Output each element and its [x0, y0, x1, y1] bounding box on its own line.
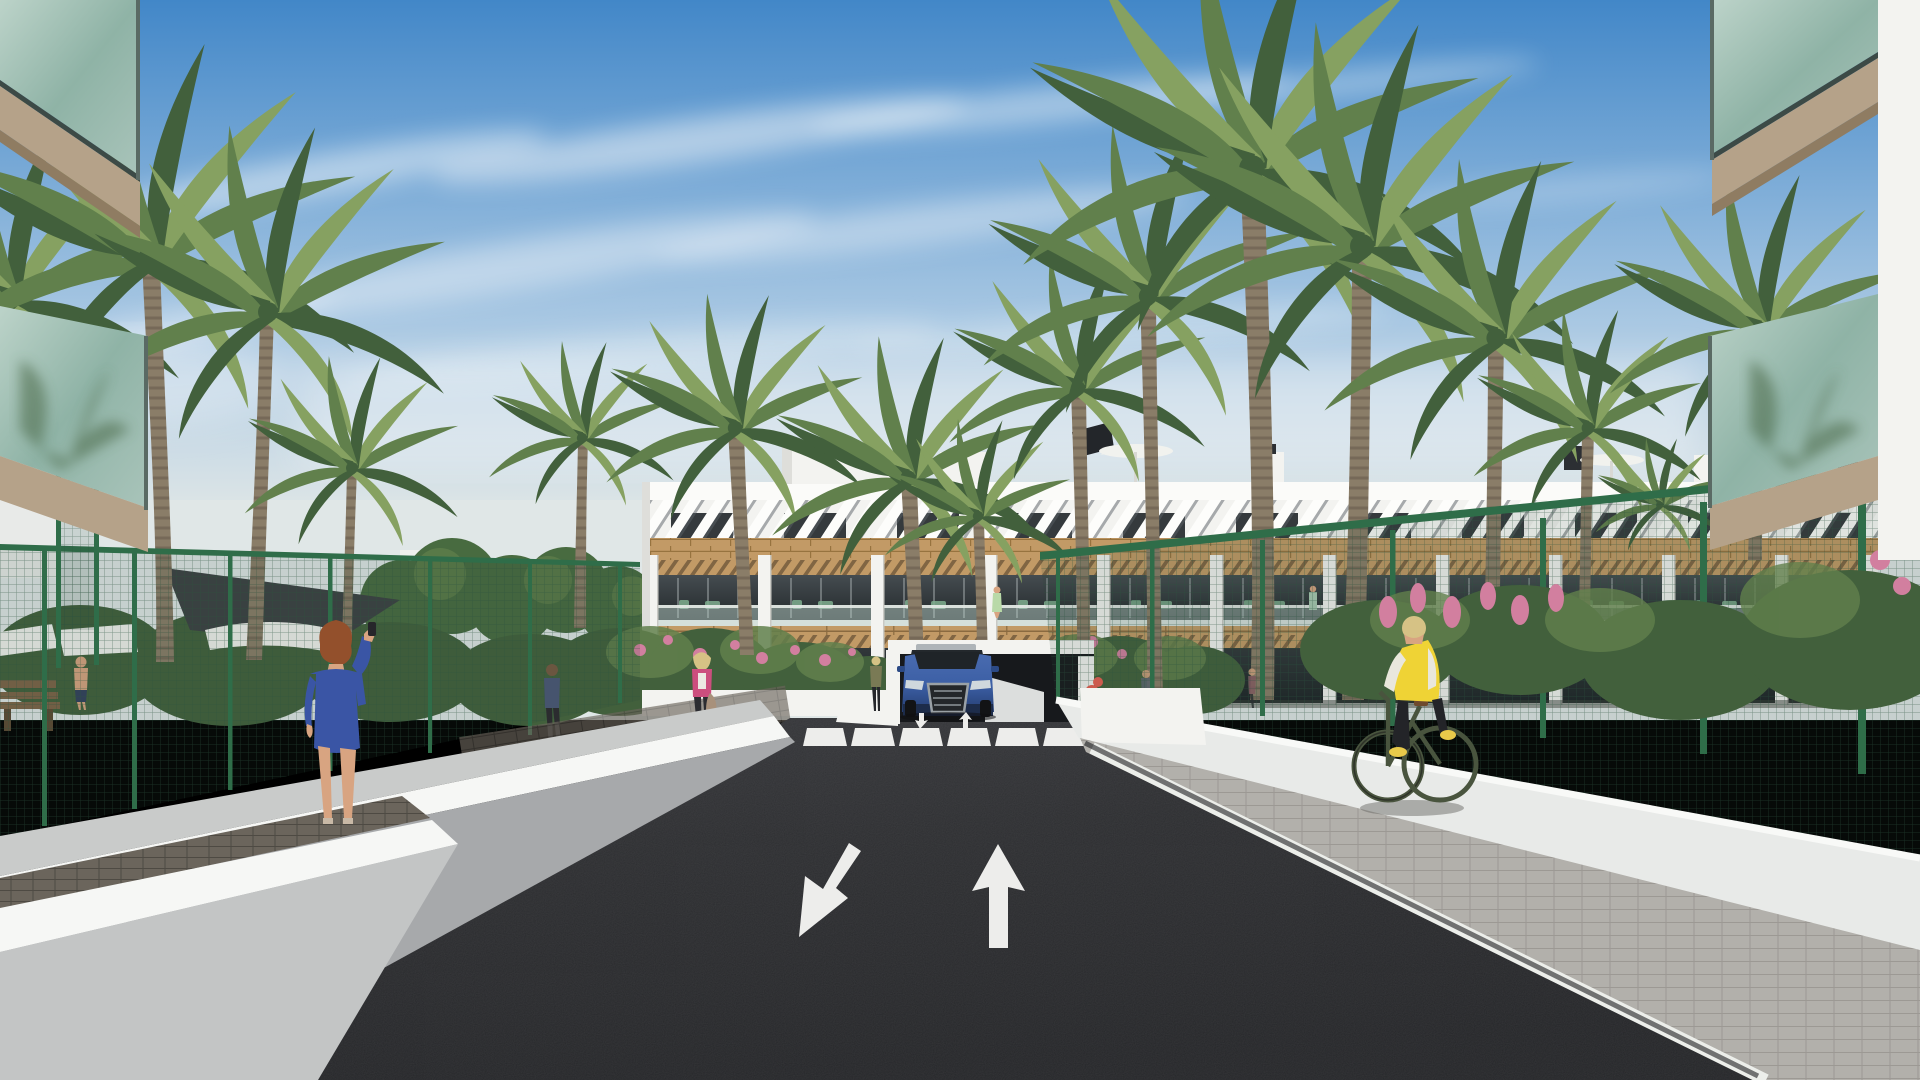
- render-canvas: [0, 0, 1920, 1080]
- blue-suv: [897, 644, 999, 722]
- architectural-render: [0, 0, 1920, 1080]
- entry-planter-wall: [1080, 688, 1206, 745]
- foreground-wall-right-edge: [1878, 0, 1920, 560]
- phone: [368, 622, 376, 636]
